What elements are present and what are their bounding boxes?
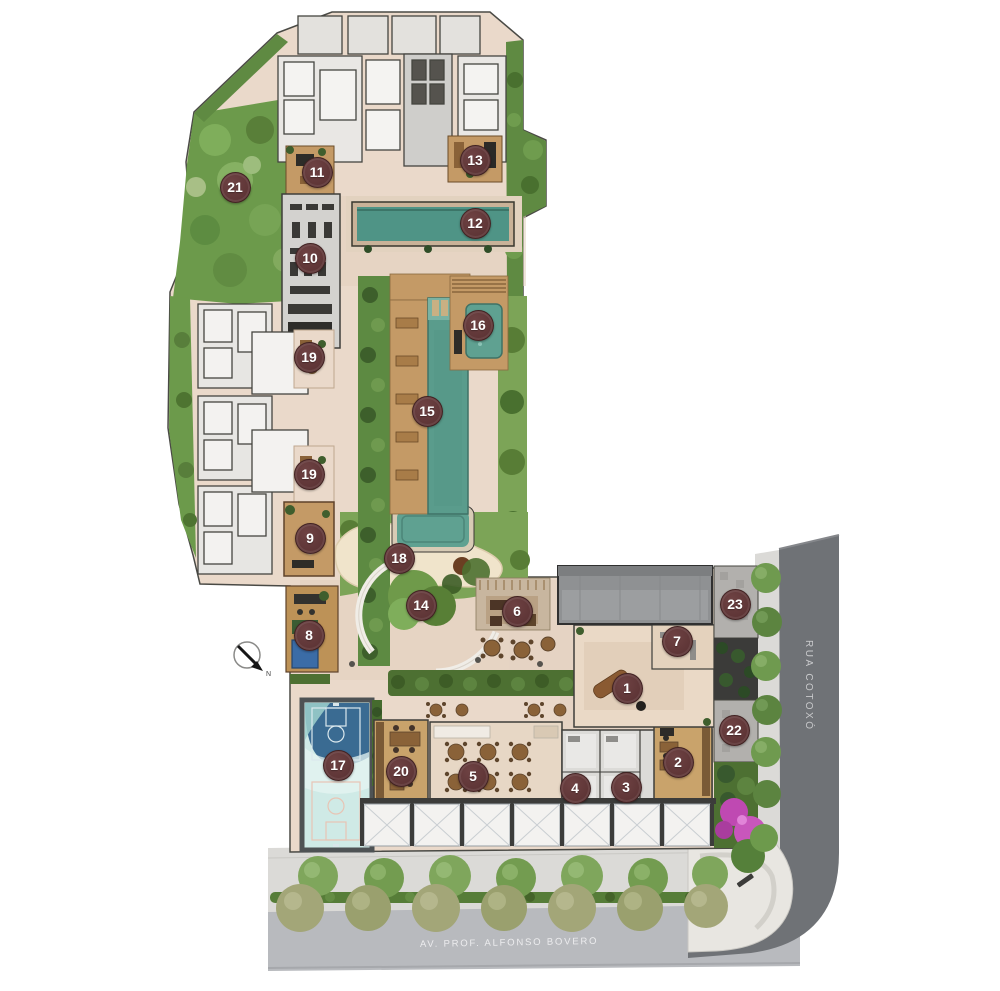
compass-label: N <box>266 671 271 678</box>
marker-20[interactable]: 20 <box>386 756 417 787</box>
marker-6[interactable]: 6 <box>502 596 533 627</box>
marker-9[interactable]: 9 <box>295 523 326 554</box>
roof-slab <box>558 566 712 624</box>
marker-18[interactable]: 18 <box>384 543 415 574</box>
marker-11[interactable]: 11 <box>302 157 333 188</box>
marker-19[interactable]: 19 <box>294 459 325 490</box>
marker-19[interactable]: 19 <box>294 342 325 373</box>
marker-17[interactable]: 17 <box>323 750 354 781</box>
marker-1[interactable]: 1 <box>612 673 643 704</box>
marker-4[interactable]: 4 <box>560 773 591 804</box>
marker-13[interactable]: 13 <box>460 145 491 176</box>
marker-12[interactable]: 12 <box>460 208 491 239</box>
site-plan: N RUA COTOXÓ AV. PROF. ALFONSO BOVERO 12… <box>0 0 1000 991</box>
marker-22[interactable]: 22 <box>719 715 750 746</box>
marker-23[interactable]: 23 <box>720 589 751 620</box>
marker-2[interactable]: 2 <box>663 747 694 778</box>
elevator-core <box>404 54 452 166</box>
lap-pool-12 <box>346 196 522 253</box>
garage-row <box>360 798 716 846</box>
marker-21[interactable]: 21 <box>220 172 251 203</box>
site-plan-drawing: N RUA COTOXÓ AV. PROF. ALFONSO BOVERO <box>0 0 1000 991</box>
marker-7[interactable]: 7 <box>662 626 693 657</box>
street-name-rua-cotoxo: RUA COTOXÓ <box>803 640 816 732</box>
marker-8[interactable]: 8 <box>294 620 325 651</box>
marker-10[interactable]: 10 <box>295 243 326 274</box>
marker-3[interactable]: 3 <box>611 772 642 803</box>
marker-14[interactable]: 14 <box>406 590 437 621</box>
marker-5[interactable]: 5 <box>458 761 489 792</box>
marker-15[interactable]: 15 <box>412 396 443 427</box>
marker-16[interactable]: 16 <box>463 310 494 341</box>
